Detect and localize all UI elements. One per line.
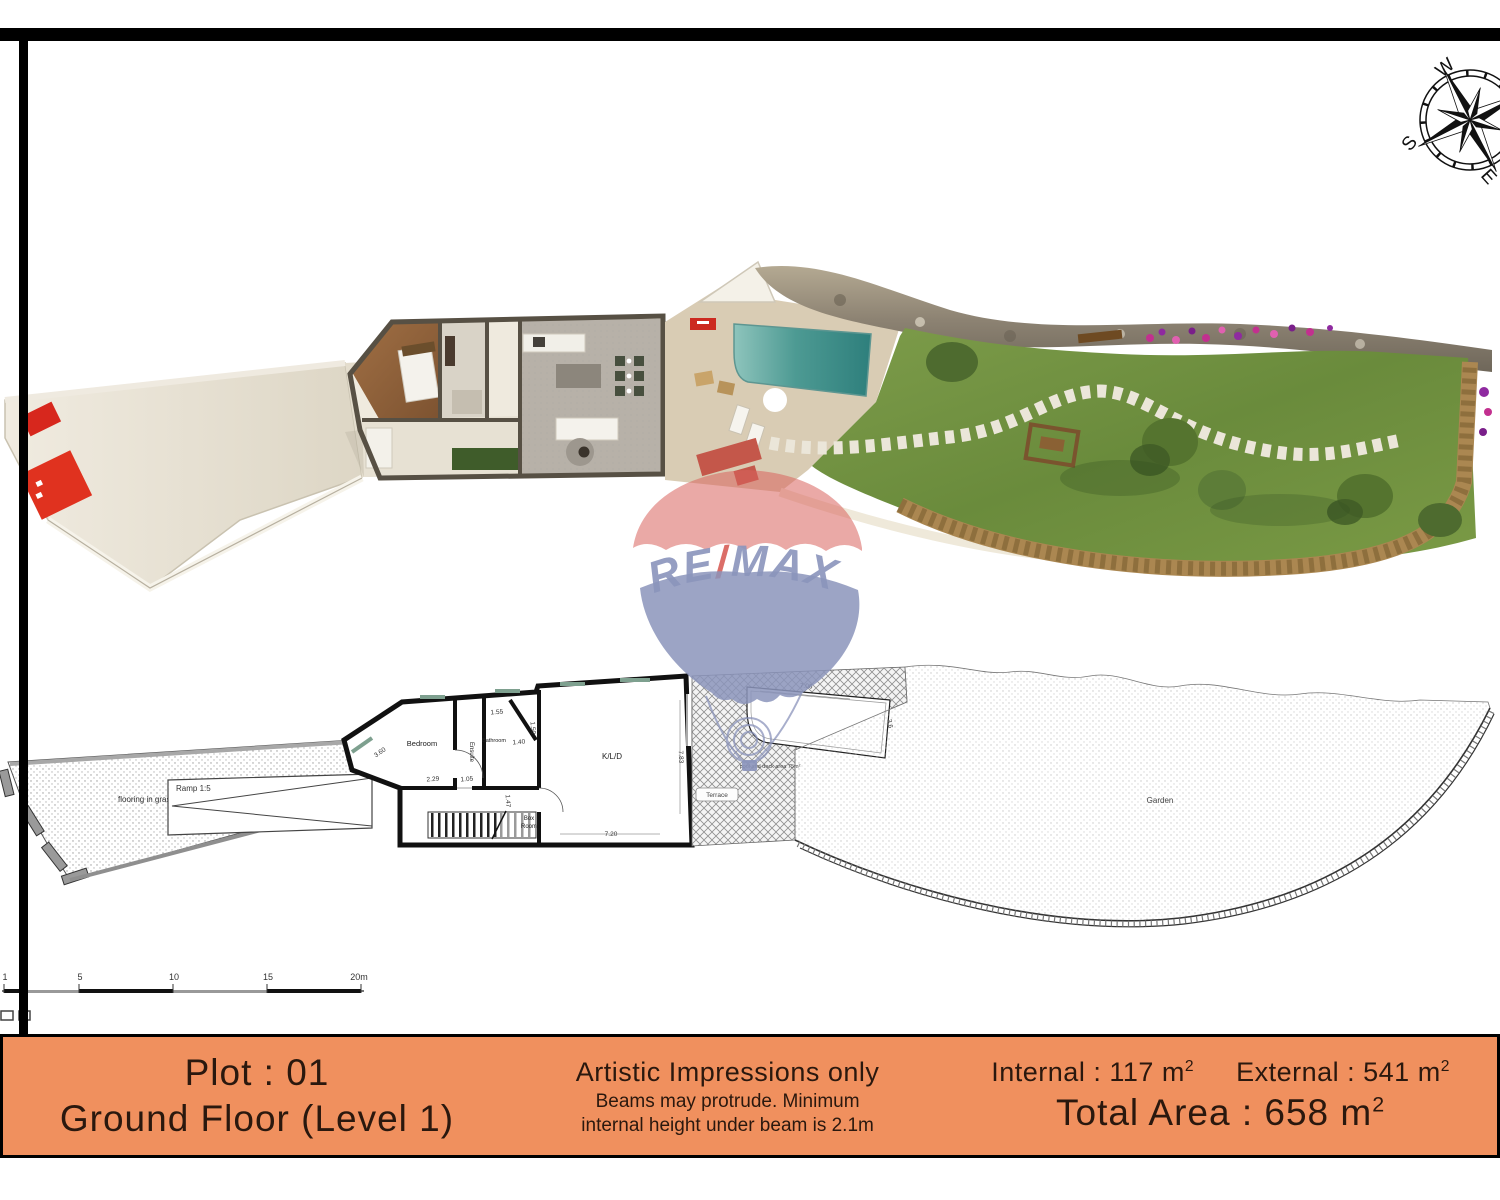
plan-stairs [428,811,536,839]
disclaimer-line-2: internal height under beam is 2.1m [581,1114,874,1138]
ensuite-label: Ensuite [468,742,474,763]
total-area-text: Total Area : 658 m [1056,1092,1372,1133]
footer-disclaimer-block: Artistic Impressions only Beams may prot… [511,1037,944,1155]
bedroom-label: Bedroom [407,739,437,748]
scale-label: 20m [350,972,368,982]
internal-area: Internal : 117 m [991,1057,1185,1087]
balloon-basket [742,760,757,771]
dining-chairs [615,356,644,396]
scale-label: 10 [169,972,179,982]
floorplan-page: flooring in grass blocks Ramp 1:5 [0,0,1500,1200]
site-plan-graphic: flooring in grass blocks Ramp 1:5 [0,0,1500,1200]
terrace-label: Terrace [706,792,728,799]
footer-area-block: Internal : 117 m2External : 541 m2 Total… [944,1037,1497,1155]
dim-text: 1.55 [490,709,503,717]
plan-ramp: Ramp 1:5 [168,774,372,835]
boxroom-label-1: Box [524,816,534,822]
footer-bar: Plot : 01 Ground Floor (Level 1) Artisti… [0,1034,1500,1158]
area-breakdown: Internal : 117 m2External : 541 m2 [991,1055,1450,1090]
total-area: Total Area : 658 m2 [1056,1090,1385,1136]
dim-text: 1.40 [512,739,525,747]
footer-plot-block: Plot : 01 Ground Floor (Level 1) [3,1037,511,1155]
dim-text: 1.05 [460,776,473,784]
scale-label: 15 [263,972,273,982]
garden-label: Garden [1147,796,1174,805]
total-area-sup: 2 [1372,1093,1385,1117]
bathroom-label: Bathroom [482,738,506,744]
external-area: External : 541 m [1236,1057,1441,1087]
scale-label: 5 [77,972,82,982]
boxroom-label-2: Room [521,824,537,830]
dim-text: 2.29 [426,776,439,784]
plot-label: Plot : 01 [185,1050,330,1096]
compass-rose: W S E [1392,42,1500,198]
ramp-label: Ramp 1:5 [176,784,211,793]
compass-south-label: S [1398,132,1422,155]
top-border-bar [0,28,1500,41]
scale-bar: 1 2 5 10 15 20m [1,972,368,1020]
external-area-sup: 2 [1441,1058,1450,1075]
internal-area-sup: 2 [1185,1058,1194,1075]
compass-west-label: W [1432,54,1459,82]
scale-label: 1 [2,972,7,982]
render-building [350,316,704,478]
dim-text: 1.50 [528,721,536,735]
left-border-bar [19,28,28,1034]
dim-text: 1.47 [504,794,512,807]
plan-building: Bedroom Ensuite Bathroom K/L/D Box Room [344,676,696,845]
dim-text: 7.83 [677,751,684,764]
plan-2d: flooring in grass blocks Ramp 1:5 [0,665,1494,927]
kld-label: K/L/D [602,752,622,761]
disclaimer-title: Artistic Impressions only [576,1055,880,1090]
disclaimer-line-1: Beams may protrude. Minimum [596,1090,860,1114]
floor-label: Ground Floor (Level 1) [60,1096,454,1142]
dim-text: 7.20 [605,831,618,838]
